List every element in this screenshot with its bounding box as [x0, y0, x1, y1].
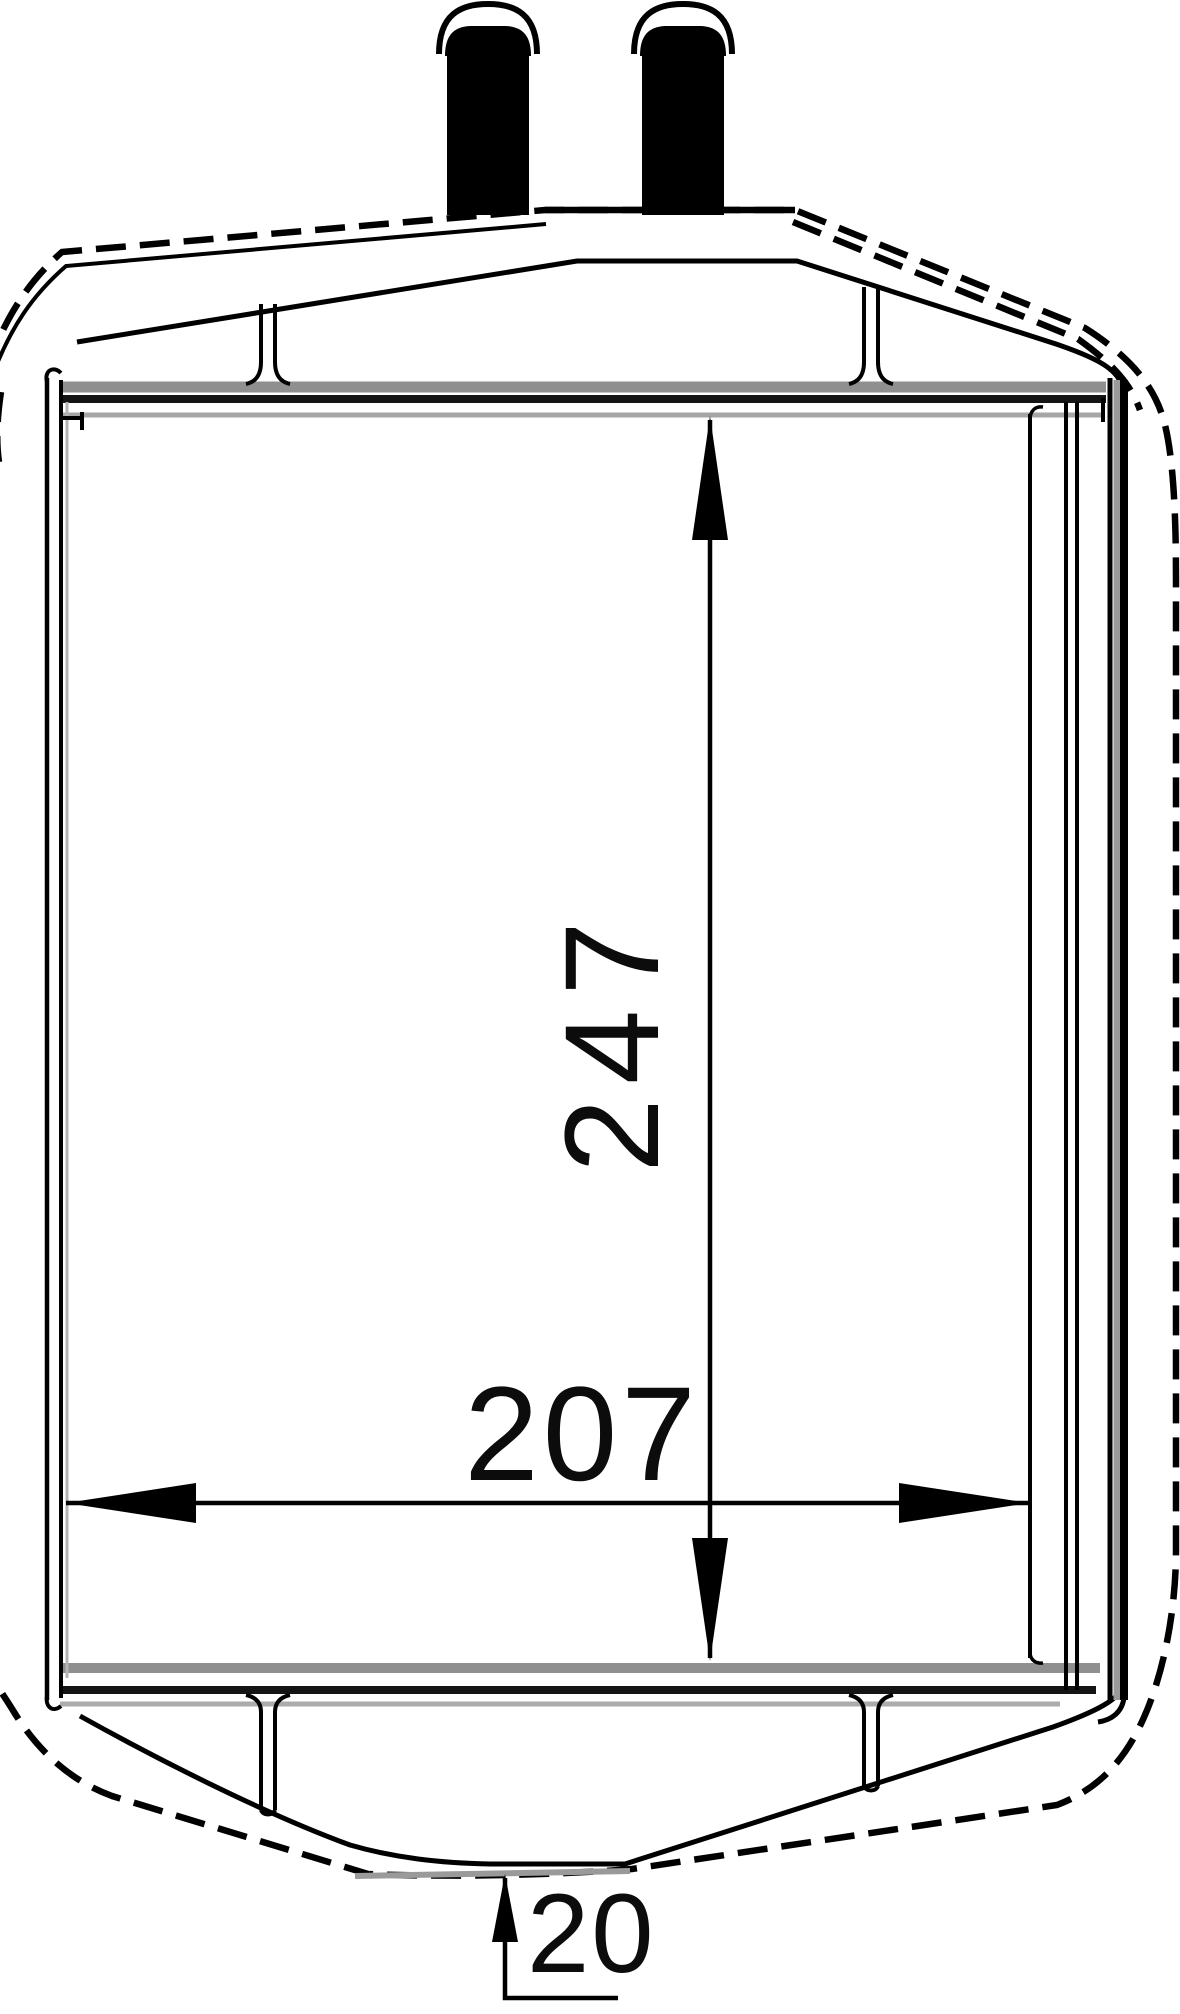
arrowhead-up-icon: [692, 416, 728, 540]
pipe-right: [634, 4, 732, 215]
dimension-depth: 20: [492, 1871, 656, 1998]
bottom-tab-left: [246, 1695, 290, 1815]
technical-drawing: 247 207 20: [0, 0, 1180, 2014]
core-bottom-edge: [60, 1668, 1100, 1704]
arrowhead-left-icon: [66, 1483, 196, 1523]
bottom-tab-right: [849, 1695, 893, 1791]
arrowhead-up-small-icon: [492, 1874, 518, 1942]
arrowhead-down-icon: [692, 1538, 728, 1661]
dimension-depth-value: 20: [527, 1871, 656, 1996]
pipe-cap: [445, 26, 531, 56]
pipe-cap: [640, 26, 726, 56]
dimension-width-value: 207: [464, 1360, 700, 1509]
side-plate-left: [46, 369, 82, 1709]
side-plate-right: [1030, 378, 1124, 1722]
heater-core-diagram: 247 207 20: [0, 0, 1180, 2014]
dimension-width: 207: [66, 1360, 1029, 1523]
top-tab-right: [849, 287, 893, 384]
core-top-edge: [62, 387, 1106, 422]
pipe-body: [447, 52, 529, 215]
dimension-height-value: 247: [538, 907, 687, 1173]
pipe-body: [642, 52, 724, 215]
pipe-left: [439, 4, 537, 215]
arrowhead-right-icon: [899, 1483, 1029, 1523]
